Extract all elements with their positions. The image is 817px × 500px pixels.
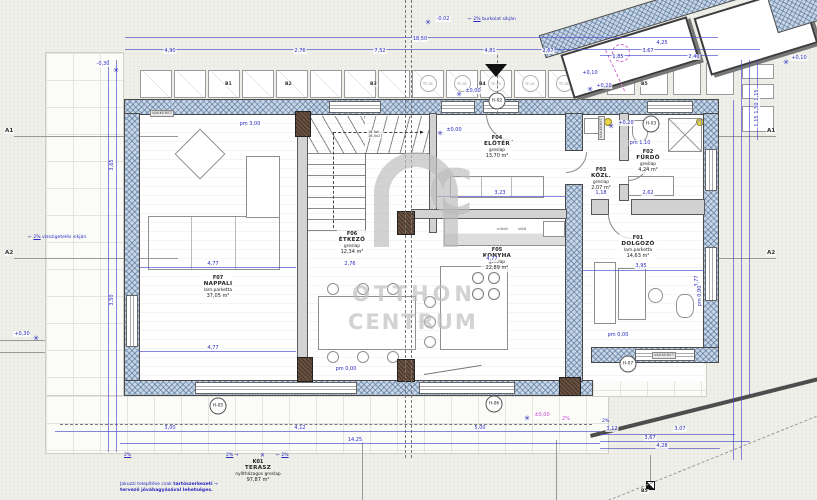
slope-x-mark: ✕	[260, 453, 265, 459]
dim-label: 3,07	[673, 426, 686, 432]
room-label-etkezo: F06 ÉTKEZŐ greslap 12,34 m²	[337, 230, 367, 256]
level-mark-icon: ✳	[608, 124, 614, 131]
slope-value: 2%	[473, 17, 480, 22]
paver	[140, 70, 172, 98]
dining-chair	[327, 283, 339, 295]
dimension-line	[733, 100, 734, 460]
dim-label: 5,00	[473, 425, 486, 431]
level-label: +0,10	[790, 55, 807, 61]
jacuzzi-note-bold: tartószerkezeti	[173, 482, 212, 487]
paver-tf01-label: TF-01	[420, 75, 437, 92]
shower	[668, 118, 702, 152]
room-name: FÜRDŐ	[636, 155, 660, 162]
sliding-door-kitchen	[420, 383, 514, 393]
ground-edge-line	[0, 352, 45, 353]
section-line	[405, 0, 406, 458]
room-name: ELŐTÉR	[484, 141, 510, 148]
parapet-note: pm 3,00	[239, 121, 262, 127]
axis-label-b4: B4	[478, 82, 487, 87]
paver-tf01: TF-01	[514, 70, 546, 98]
dim-label: 3,12	[605, 426, 618, 432]
arrow-right-icon: →	[214, 482, 218, 487]
cooktop-burner	[488, 272, 500, 284]
dining-chair	[327, 351, 339, 363]
sofa-chaise	[246, 156, 280, 218]
sliding-door-living	[196, 383, 356, 393]
dim-label: 1,85	[611, 54, 624, 60]
bar-stool	[424, 296, 436, 308]
opening-tag-h03: H-03	[643, 116, 660, 133]
parapet-note: pm 0,00	[607, 332, 630, 338]
slope-value: 2%	[226, 453, 233, 458]
dimension-line	[139, 267, 296, 268]
axis-label-b1: B1	[224, 82, 233, 87]
dim-label: 2,62	[641, 190, 654, 196]
bar-stool	[424, 336, 436, 348]
paver	[174, 70, 206, 98]
dim-label: 3,65	[109, 158, 115, 171]
cooktop-burner	[488, 288, 500, 300]
room-area: 14,63 m²	[621, 253, 654, 259]
dimension-line	[55, 431, 600, 432]
dimension-line	[436, 196, 566, 197]
level-mark-icon: ✳	[113, 68, 119, 75]
dining-table	[318, 296, 416, 350]
room-area: 13,70 m²	[484, 153, 510, 159]
dimension-line	[125, 49, 760, 50]
arrow-right-icon: →	[235, 453, 239, 458]
level-label: ±0,00	[533, 412, 550, 418]
dim-label: 4,81	[483, 48, 496, 54]
level-mark-icon: ✳	[524, 416, 530, 423]
level-label: +0,20	[617, 120, 634, 126]
terrace-paving-left	[45, 52, 124, 454]
wall-living-divider	[298, 114, 307, 381]
dim-label: 2,40	[687, 54, 700, 60]
parapet-note: pm 1,10	[629, 140, 652, 146]
opening-tag-h06: H-06	[486, 396, 503, 413]
wall-kitchen-study-divider	[566, 185, 582, 381]
level-label: +0,10	[581, 70, 598, 76]
stair-dims: 16,5x27	[368, 134, 383, 138]
axis-label-a1-right: A1	[766, 128, 776, 134]
dim-label: 4,12	[293, 425, 306, 431]
level-label: ±0,00	[464, 88, 481, 94]
dim-label: 7,52	[373, 48, 386, 54]
dimension-line	[108, 60, 109, 452]
dim-label: 14,25	[347, 437, 363, 443]
wall-study-north-b	[632, 200, 704, 214]
kitchen-sink	[543, 221, 565, 237]
room-area: 22,89 m²	[483, 265, 511, 271]
room-area: 4,24 m²	[636, 167, 660, 173]
paver-tf01-label: TF-01	[522, 75, 539, 92]
dining-chair	[357, 283, 369, 295]
entrance-arrow-icon	[485, 64, 507, 77]
dim-label: 18,50	[412, 36, 428, 42]
section-line	[411, 0, 412, 458]
axis-label-b3: B3	[369, 82, 378, 87]
slope-text: burkolat síkján	[482, 17, 516, 22]
dim-label: 3,23	[493, 190, 506, 196]
dim-label: 2,76	[343, 261, 356, 267]
room-area: 12,34 m²	[339, 249, 365, 255]
level-mark-icon: ✳	[425, 20, 431, 27]
dimension-line	[139, 351, 296, 352]
room-name: ÉTKEZŐ	[339, 237, 365, 244]
level-label: +0,20	[595, 83, 612, 89]
wall-kitchen-north	[412, 210, 566, 218]
window-stair	[330, 102, 380, 112]
wall-study-north-a	[592, 200, 608, 214]
axis-label-b5: B5	[640, 82, 649, 87]
pier	[560, 378, 580, 395]
study-chair	[648, 288, 663, 303]
dim-label: 3,67	[643, 435, 656, 441]
dim-label: 3,50	[109, 293, 115, 306]
dimension-line	[116, 60, 117, 452]
parapet-note: pm 0,00	[335, 366, 358, 372]
level-label: -0,30	[96, 61, 111, 67]
dimension-line	[600, 434, 735, 435]
room-label-nappali: F07 NAPPALI lam.parketta 37,05 m²	[202, 274, 235, 300]
room-label-eloter: F04 ELŐTÉR greslap 13,70 m²	[482, 134, 512, 160]
dimension-line	[582, 270, 704, 271]
bar-stool	[424, 316, 436, 328]
slope-note-left: ← 2% vízszigetelés síkján	[28, 235, 86, 241]
pier	[298, 358, 312, 381]
exterior-wall-left	[125, 114, 139, 395]
dim-label: 3,95	[634, 263, 647, 269]
wall-bath-west-lower	[620, 185, 628, 200]
axis-label-a2-right: A2	[766, 250, 776, 256]
dim-label: 3,67	[641, 48, 654, 54]
terrace-joint-line	[362, 440, 363, 500]
paver-tf01-label: TF-01	[488, 75, 505, 92]
slope-value: 2%	[281, 453, 288, 458]
arrow-left-icon: ←	[276, 453, 280, 458]
study-armchair	[676, 294, 694, 318]
room-area: 37,05 m²	[204, 293, 233, 299]
stair-direction-arrow-icon: ▸	[420, 128, 424, 136]
dim-label: 2,67	[541, 48, 554, 54]
dim-label: 1,18	[594, 190, 607, 196]
cooktop-burner	[472, 272, 484, 284]
stair-note: 18 fok 16,5x27	[368, 130, 383, 138]
floor-plan-canvas: TF-01 TF-01 TF-01 TF-01 TF-01	[0, 0, 817, 500]
paver	[310, 70, 342, 98]
terrace-dashed-edge	[60, 424, 592, 425]
jacuzzi-note-bold: tervező jóváhagyásával lehetséges.	[120, 488, 213, 493]
dim-label: 4,77	[206, 345, 219, 351]
room-label-dolgozo: F01 DOLGOZÓ lam.parketta 14,63 m²	[619, 234, 656, 260]
microwave-label: mikró	[497, 226, 508, 232]
dimension-line	[600, 441, 750, 442]
room-label-kozl: F03 KÖZL. greslap 2,07 m²	[589, 166, 613, 192]
window-study-east	[706, 248, 716, 300]
dim-label: 1,15	[754, 114, 760, 127]
dimension-line	[749, 60, 750, 395]
axis-label-a1: A1	[4, 128, 14, 134]
dim-label: 4,77	[485, 256, 498, 262]
slope-value: 2%	[33, 235, 40, 240]
terrace-joint-line	[556, 440, 557, 500]
study-shelf	[594, 262, 616, 324]
dim-label: 2,76	[293, 48, 306, 54]
dim-label: 4,90	[163, 48, 176, 54]
level-mark-icon: ✳	[587, 87, 593, 94]
opening-tag-h07: H-07	[620, 356, 637, 373]
level-label: ±0,00	[445, 127, 462, 133]
arrow-left-icon: ←	[468, 17, 472, 22]
room-name: NAPPALI	[204, 281, 233, 288]
dimension-line	[741, 60, 742, 460]
dimension-line	[120, 443, 600, 444]
room-name: DOLGOZÓ	[621, 241, 654, 248]
axis-label-a2: A2	[4, 250, 14, 256]
axis-label-b2: B2	[284, 82, 293, 87]
slope-note-top: ← 2% burkolat síkján	[468, 17, 516, 23]
dim-label: 1,15	[754, 88, 760, 101]
slope-value: 2%	[124, 453, 131, 458]
dim-label: 1,50	[754, 101, 760, 114]
dining-chair	[387, 283, 399, 295]
dim-label: 4,77	[206, 261, 219, 267]
room-name: KÖZL.	[591, 173, 611, 180]
window-hall	[442, 102, 474, 112]
room-label-terasz: K01 TERASZ nyílthézagos greslap 97,87 m²	[233, 458, 282, 484]
vakkeret-plate: VAKKERET	[150, 110, 174, 117]
axis-line-a1	[14, 136, 178, 137]
slope-note: 2% →	[226, 453, 239, 459]
jacuzzi-note-text: Jakuzzi telepítése csak	[120, 482, 173, 487]
level-mark-icon: ✳	[33, 336, 39, 343]
slope-note: ← 2%	[276, 453, 289, 459]
level-mark-icon: ✳	[783, 60, 789, 67]
dim-label: 4,28	[655, 443, 668, 449]
window-bath-east	[706, 150, 716, 190]
level-mark-icon: ✳	[437, 131, 443, 138]
room-name: TERASZ	[235, 465, 280, 472]
level-mark-icon: ✳	[456, 92, 462, 99]
window-living-west	[127, 296, 137, 346]
stair-walk-line	[333, 132, 335, 228]
study-desk	[618, 268, 646, 320]
axis-line-a1-right	[718, 136, 776, 137]
oven-label: sütő	[518, 226, 526, 232]
dining-chair	[357, 351, 369, 363]
room-label-furdo: F02 FÜRDŐ greslap 4,24 m²	[634, 148, 662, 174]
parapet-note: pm 0,90	[697, 285, 703, 308]
slope-note: 2%	[124, 453, 131, 459]
jacuzzi-note: Jakuzzi telepítése csak tartószerkezeti …	[120, 482, 280, 493]
slope-note: 2%	[602, 419, 609, 425]
vakkeret-plate: VAKKERET	[652, 352, 676, 359]
paver	[242, 70, 274, 98]
arrow-left-icon: ←	[28, 235, 32, 240]
level-label: +0,30	[13, 331, 30, 337]
paver-tf01: TF-01	[412, 70, 444, 98]
axis-line-a2-right	[718, 258, 776, 259]
slope-text: vízszigetelés síkján	[42, 235, 86, 240]
level-label: -0,02	[436, 16, 451, 22]
axis-label-b5-bottom: B5	[640, 489, 649, 494]
dim-label: 3,00	[163, 425, 176, 431]
opening-tag-h05: H-05	[210, 398, 227, 415]
stair-lower-run	[304, 153, 366, 233]
pier	[296, 112, 310, 136]
cooktop-burner	[472, 288, 484, 300]
dim-label: 4,25	[655, 40, 668, 46]
opening-tag-h02: H-02	[489, 93, 506, 110]
slope-label: 2%	[561, 416, 571, 422]
